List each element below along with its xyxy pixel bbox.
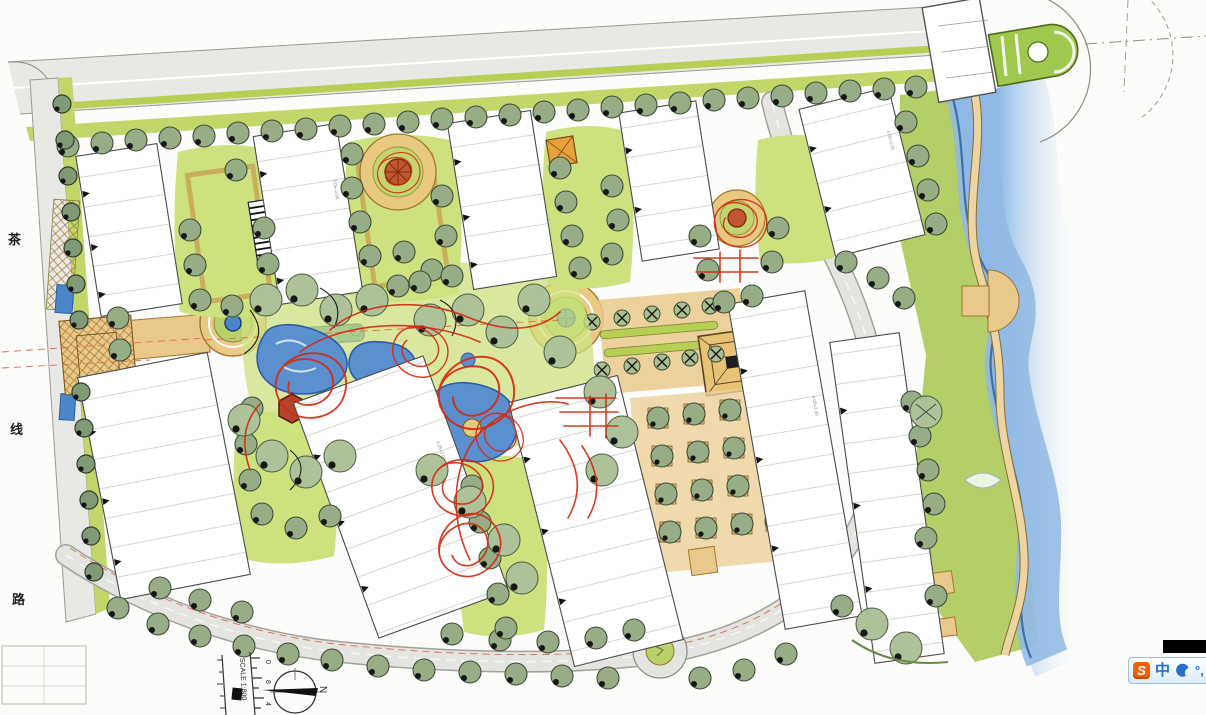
street-char-2: 线 [10, 422, 23, 437]
sogou-logo-icon[interactable]: S [1133, 662, 1150, 679]
masterplan-canvas: 茶 线 路 [0, 0, 1206, 715]
punctuation-mode-icon[interactable]: °, [1195, 664, 1204, 677]
ime-toolbar[interactable]: S 中 °, [1128, 657, 1206, 684]
moon-icon[interactable] [1175, 663, 1190, 678]
scan-black-edge [1163, 640, 1206, 653]
street-char-3: 路 [12, 592, 26, 607]
scale-tick-1: 8 [264, 680, 271, 684]
north-label: N [317, 686, 328, 693]
circular-plaza-feature [360, 134, 436, 210]
scale-tick-2: 4 [264, 702, 271, 706]
street-char-1: 茶 [8, 232, 22, 247]
scale-tick-0: 0 [264, 660, 271, 664]
chinese-mode-icon[interactable]: 中 [1155, 663, 1170, 678]
